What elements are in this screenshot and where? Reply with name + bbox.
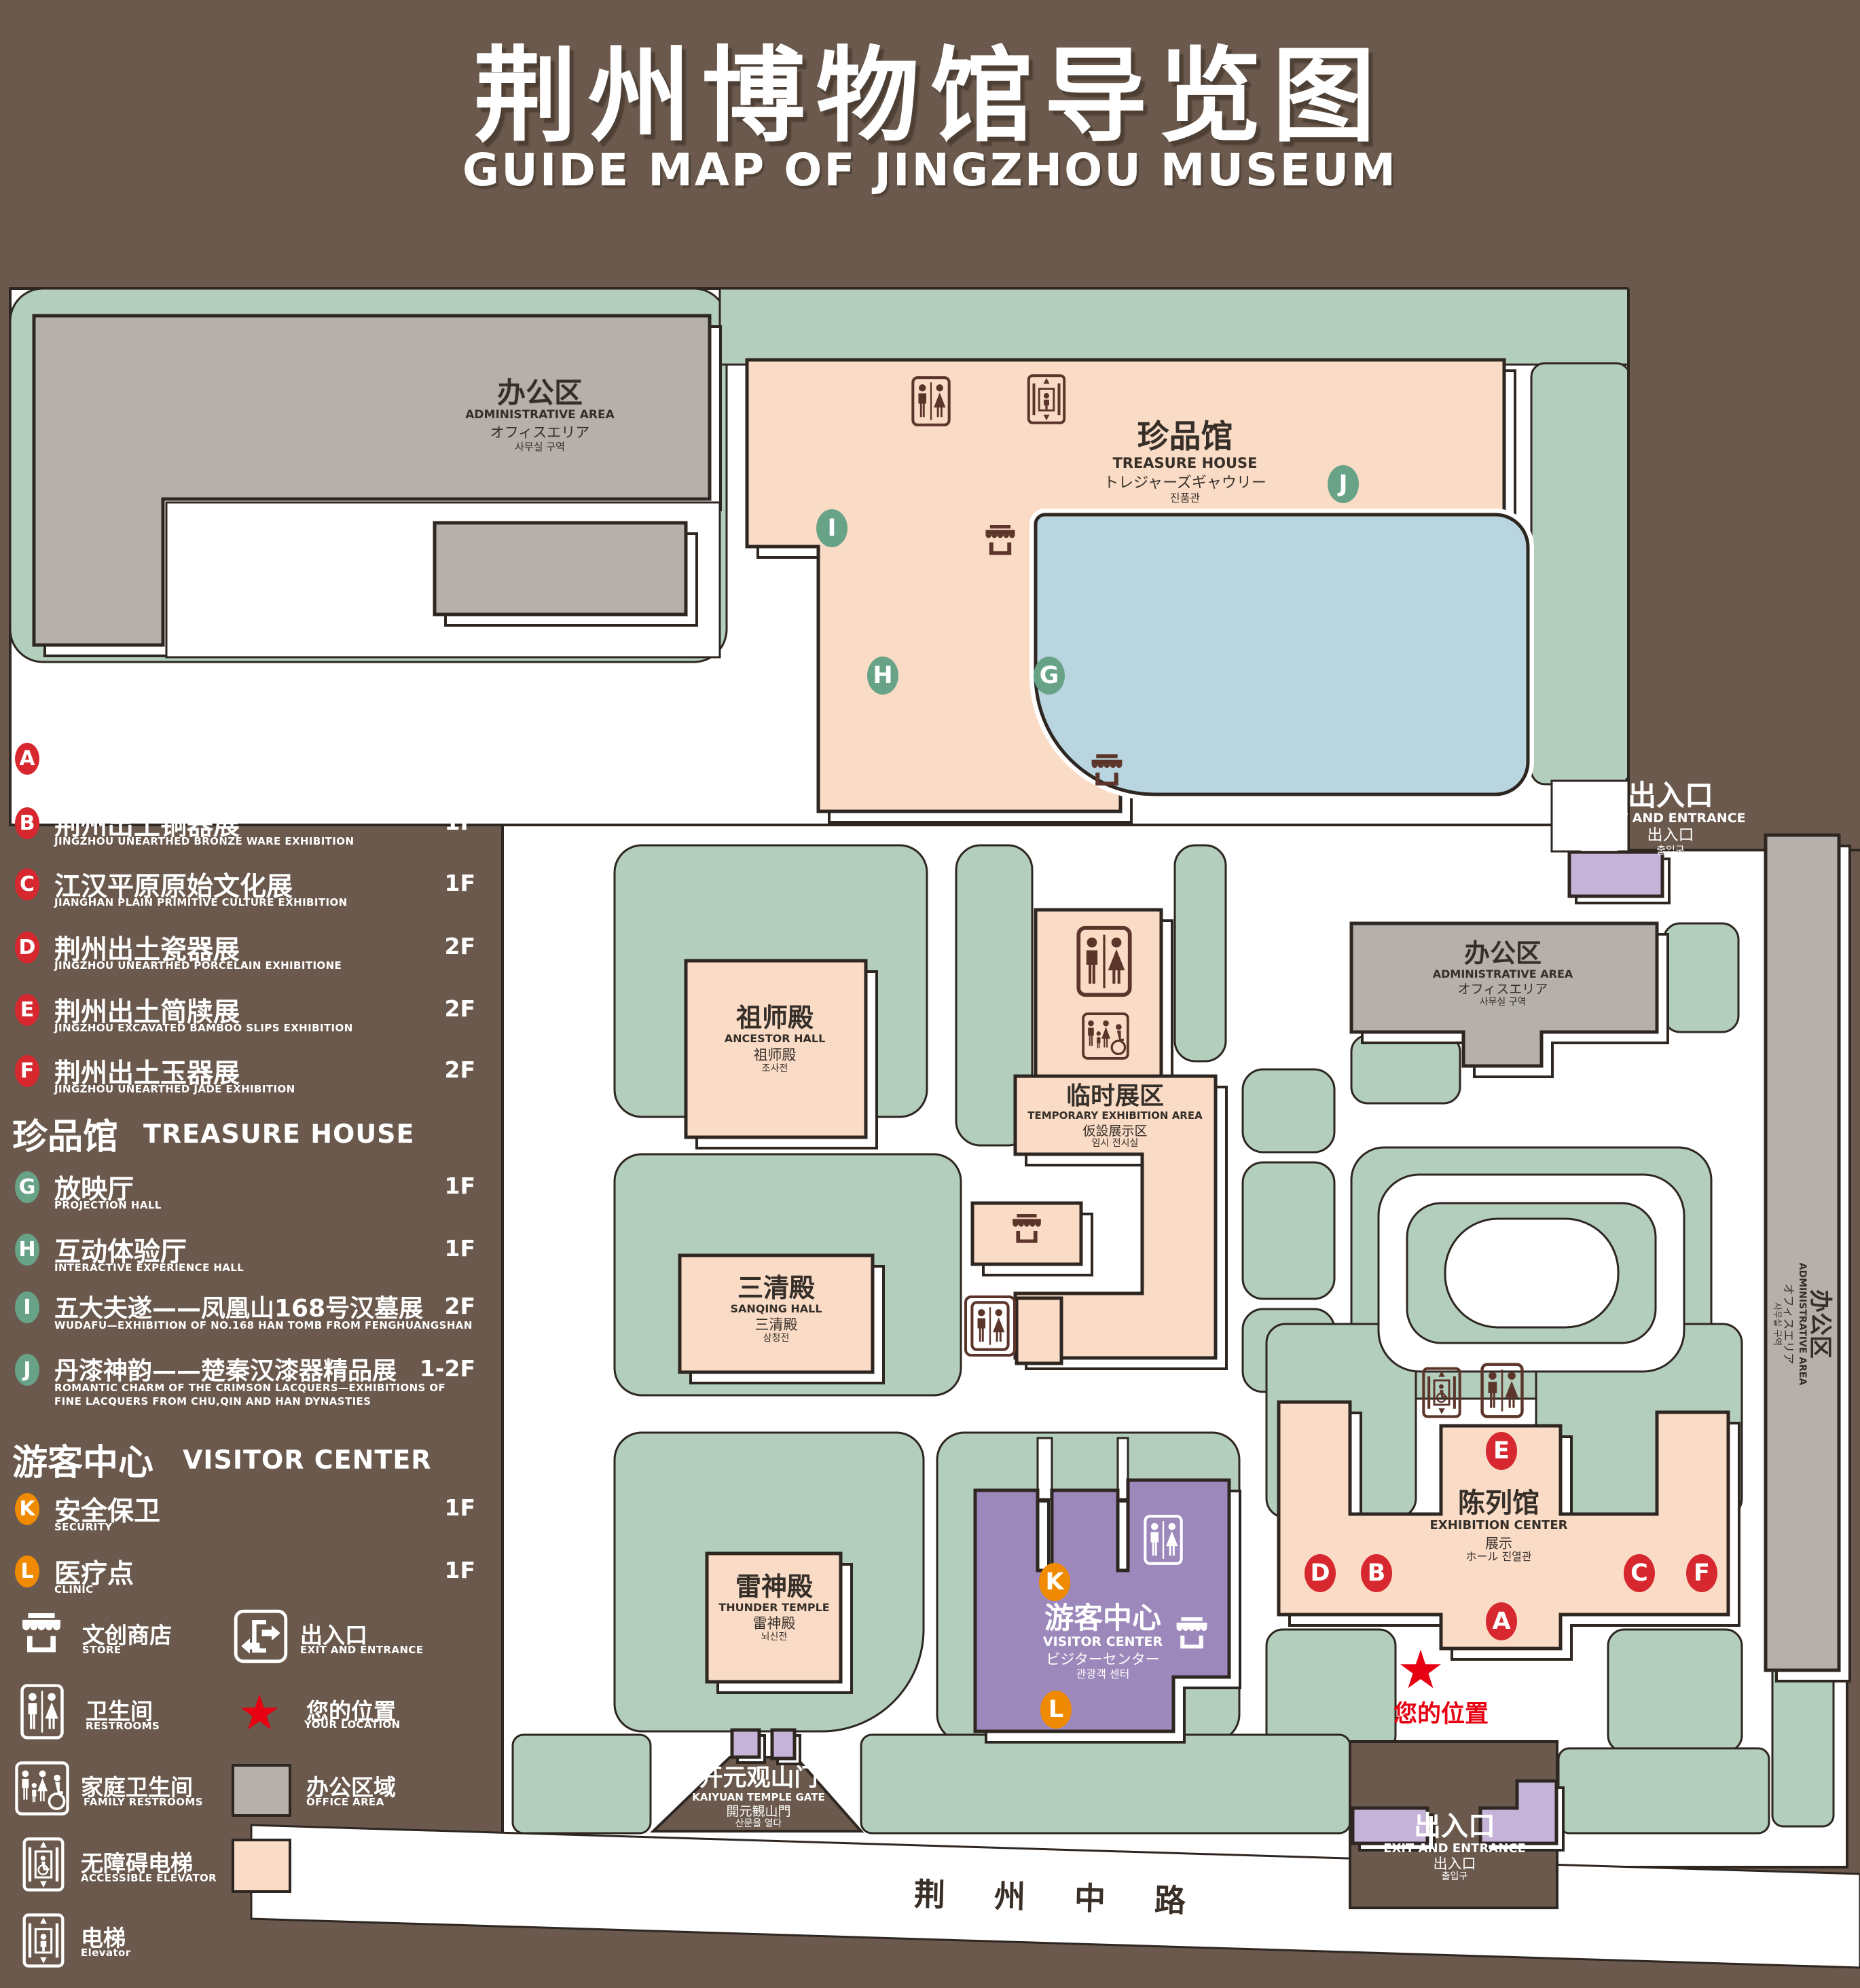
label-thunder-temple: 雷神殿 THUNDER TEMPLE 雷神殿 뇌신전: [718, 1572, 829, 1643]
label-jp: オフィスエリア: [1433, 982, 1573, 997]
label-jp: 祖师殿: [725, 1048, 826, 1064]
item-en: CLINIC: [54, 1583, 475, 1597]
label-jp: 展示: [1430, 1536, 1568, 1551]
lawn: [1243, 1162, 1334, 1299]
lawn: [1266, 1630, 1396, 1752]
item-floor: 2F: [444, 1293, 475, 1319]
store-icon: [1173, 1608, 1211, 1665]
item-en: THE PHOENIX IN FIRE "MURAL PAINTING: [54, 771, 475, 784]
purple-building-topright: [1569, 852, 1662, 896]
label-en: VISITOR CENTER: [1043, 1635, 1163, 1649]
label-jp: オフィスエリア: [465, 425, 614, 441]
legend-item-f: F 荆州出土玉器展 JINGZHOU UNEARTHED JADE EXHIBI…: [0, 1052, 484, 1111]
label-admin-right: 办公区 ADMINISTRATIVE AREA オフィスエリア 사무실 구역: [1772, 1263, 1833, 1386]
label-en: ADMINISTRATIVE AREA: [465, 409, 614, 422]
label-jp: 開元観山門: [692, 1805, 824, 1819]
restroom-icon: [911, 375, 951, 427]
map-badge-E: E: [1486, 1432, 1517, 1470]
lawn: [1531, 363, 1630, 784]
legend-item-h: H 互动体验厅 INTERACTIVE EXPERIENCE HALL 1F: [0, 1231, 484, 1289]
label-kr: 사무실 구역: [1772, 1263, 1782, 1386]
label-zh: 办公区: [465, 377, 614, 409]
label-jp: 出入口: [1383, 1856, 1526, 1873]
map-badge-D: D: [1305, 1554, 1336, 1592]
label-your-location: 您的位置: [1393, 1701, 1489, 1728]
label-kr: 삼청전: [730, 1333, 822, 1344]
store-icon: [18, 1610, 65, 1663]
item-en: SECURITY: [54, 1521, 475, 1534]
symbol-location-en: YOUR LOCATION: [304, 1718, 401, 1731]
badge-k: K: [15, 1493, 39, 1525]
legend-section-visitor-center: 游客中心 VISITOR CENTER: [0, 1434, 489, 1481]
label-en: EXHIBITION CENTER: [1430, 1519, 1568, 1532]
section-title-zh: 珍品馆: [12, 1108, 118, 1159]
label-en: THUNDER TEMPLE: [718, 1602, 829, 1614]
gate-tower-left: [732, 1730, 759, 1757]
badge-g: G: [15, 1171, 39, 1203]
label-kr: 관광객 센터: [1043, 1668, 1163, 1680]
label-zh: 临时展区: [1027, 1083, 1202, 1110]
restroom-icon: [964, 1295, 1016, 1357]
section-title-en: TREASURE HOUSE: [143, 1119, 415, 1149]
label-jp: 三清殿: [730, 1317, 822, 1333]
item-floor: 2F: [444, 933, 475, 959]
label-zh: 出入口: [1383, 1811, 1526, 1842]
label-kr: 임시 전시실: [1027, 1139, 1202, 1149]
map-badge-C: C: [1624, 1554, 1655, 1592]
family-restroom-icon: [1082, 1006, 1129, 1066]
symbol-exit-en: EXIT AND ENTRANCE: [300, 1644, 423, 1656]
legend-section-treasure-house: 珍品馆 TREASURE HOUSE: [0, 1108, 489, 1156]
store-icon: [1009, 1208, 1044, 1255]
lawn: [1664, 923, 1738, 1032]
item-floor: 1F: [444, 1235, 475, 1262]
map-badge-B: B: [1361, 1554, 1392, 1592]
location-star-icon: ★: [238, 1688, 282, 1737]
label-kr: 뇌신전: [718, 1632, 829, 1643]
map-badge-L: L: [1040, 1691, 1072, 1729]
outside-area: [1628, 285, 1860, 850]
label-kr: 진품관: [1104, 492, 1266, 504]
label-zh: 祖师殿: [725, 1004, 826, 1033]
legend-item-e: E 荆州出土简牍展 JINGZHOU EXCAVATED BAMBOO SLIP…: [0, 991, 484, 1050]
badge-d: D: [15, 932, 39, 963]
label-visitor-center: 游客中心 VISITOR CENTER ビジターセンター 관광객 센터: [1043, 1602, 1163, 1680]
badge-e: E: [15, 994, 39, 1026]
item-en: PROJECTION HALL: [54, 1199, 475, 1213]
lawn: [1243, 1069, 1334, 1152]
lawn: [861, 1735, 1350, 1833]
label-temporary-area: 临时展区 TEMPORARY EXHIBITION AREA 仮設展示区 임시 …: [1027, 1083, 1202, 1149]
lawn: [1558, 1748, 1769, 1833]
restroom-icon: [1144, 1513, 1183, 1567]
badge-i: I: [15, 1291, 39, 1323]
item-en: INTERACTIVE EXPERIENCE HALL: [54, 1262, 475, 1275]
badge-l: L: [15, 1556, 39, 1587]
guide-map-page: 荆州博物馆导览图 GUIDE MAP OF JINGZHOU MUSEUM: [0, 0, 1860, 1988]
store-icon: [1088, 749, 1126, 798]
accessible-elevator-icon: [1422, 1362, 1461, 1423]
office-building-right: [1766, 835, 1839, 1670]
symbol-display-en: DISPLAY AREA: [300, 1871, 385, 1883]
label-en: EXIT AND ENTRANCE: [1383, 1842, 1526, 1856]
legend-item-g: G 放映厅 PROJECTION HALL 1F: [0, 1168, 484, 1227]
accessible-elevator-icon: [17, 1837, 70, 1892]
item-floor: 1F: [444, 809, 475, 835]
restroom-icon: [1076, 925, 1132, 998]
label-jp: ビジターセンター: [1043, 1652, 1163, 1668]
map-badge-F: F: [1686, 1554, 1717, 1592]
legend-item-b: B 荆州出土铜器展 JINGZHOU UNEARTHED BRONZE WARE…: [0, 805, 484, 863]
exit-icon: [1574, 801, 1624, 851]
item-floor: 1F: [444, 1173, 475, 1199]
badge-b: B: [15, 807, 39, 839]
label-admin-topleft: 办公区 ADMINISTRATIVE AREA オフィスエリア 사무실 구역: [465, 377, 614, 452]
map-badge-I: I: [816, 509, 847, 547]
elevator-icon: [17, 1913, 70, 1968]
visitor-entry-slot: [1038, 1438, 1052, 1499]
section-title-zh: 游客中心: [12, 1434, 153, 1485]
symbol-family-en: FAMILY RESTROOMS: [84, 1796, 203, 1808]
your-location-star: ★: [1397, 1644, 1444, 1697]
label-exit-bottom: 出入口 EXIT AND ENTRANCE 出入口 출입구: [1383, 1811, 1526, 1883]
badge-c: C: [15, 868, 39, 900]
map-badge-H: H: [867, 657, 898, 695]
label-en: SANQING HALL: [730, 1303, 822, 1315]
small-display-building: [1017, 1298, 1061, 1363]
label-ancestor-hall: 祖师殿 ANCESTOR HALL 祖师殿 조사전: [725, 1004, 826, 1075]
legend-item-j: J 丹漆神韵——楚秦汉漆器精品展 ROMANTIC CHARM OF THE C…: [0, 1351, 484, 1433]
item-en: JINGZHOU UNEARTHED PORCELAIN EXHIBITIONE: [54, 959, 475, 973]
item-floor: 1F: [444, 1494, 475, 1521]
label-zh: 陈列馆: [1430, 1488, 1568, 1519]
lawn: [1351, 1035, 1460, 1103]
label-kr: 사무실 구역: [465, 441, 614, 453]
label-jp: トレジャーズギャウリー: [1104, 475, 1266, 492]
map-badge-A: A: [1486, 1602, 1517, 1640]
office-annex: [435, 523, 686, 614]
label-zh: 办公区: [1433, 939, 1573, 968]
map-badge-J: J: [1328, 465, 1359, 503]
item-floor: 1-2F: [420, 1355, 475, 1382]
restroom-icon: [14, 1684, 71, 1739]
label-jp: 雷神殿: [718, 1616, 829, 1632]
label-exhibition-center: 陈列馆 EXHIBITION CENTER 展示 ホール 진열관: [1430, 1488, 1568, 1563]
badge-f: F: [15, 1055, 39, 1087]
badge-h: H: [15, 1234, 39, 1266]
item-en: JINGZHOU UNEARTHED JADE EXHIBITION: [54, 1083, 475, 1097]
item-floor: 1F: [444, 1557, 475, 1583]
your-location-text: 您的位置: [1393, 1701, 1489, 1728]
symbol-store-en: STORE: [82, 1644, 122, 1656]
label-kr: 출입구: [1383, 1872, 1526, 1883]
symbol-accessible-en: ACCESSIBLE ELEVATOR: [81, 1872, 217, 1884]
label-sanqing-hall: 三清殿 SANQING HALL 三清殿 삼청전: [730, 1274, 822, 1344]
elevator-icon: [1027, 374, 1066, 424]
label-en: ANCESTOR HALL: [725, 1033, 826, 1045]
section-title-en: VISITOR CENTER: [183, 1445, 432, 1475]
legend-item-l: L 医疗点 CLINIC 1F: [0, 1553, 484, 1611]
maze-pond-path: [1445, 1219, 1618, 1327]
item-en: JINGZHOU EXCAVATED BAMBOO SLIPS EXHIBITI…: [54, 1022, 475, 1035]
section-title-en: EXHIBITION CENTER: [146, 690, 448, 720]
display-area-swatch: [232, 1839, 291, 1893]
item-floor: 1F: [444, 870, 475, 896]
badge-a: A: [15, 743, 39, 775]
label-treasure-house: 珍品馆 TREASURE HOUSE トレジャーズギャウリー 진품관: [1104, 420, 1266, 504]
symbol-elevator-en: Elevator: [81, 1947, 131, 1959]
legend-item-a: A 《火中的凤凰》壁画 THE PHOENIX IN FIRE "MURAL P…: [0, 740, 484, 798]
label-kr: ホール 진열관: [1430, 1551, 1568, 1563]
office-area-swatch: [232, 1764, 291, 1817]
item-floor: 2F: [444, 995, 475, 1022]
legend-item-d: D 荆州出土瓷器展 JINGZHOU UNEARTHED PORCELAIN E…: [0, 929, 484, 987]
label-zh: 雷神殿: [718, 1572, 829, 1602]
map-badge-G: G: [1034, 657, 1065, 695]
label-zh: 珍品馆: [1104, 420, 1266, 456]
label-road: 荆 州 中 路: [913, 1877, 1205, 1919]
map-badge-K: K: [1039, 1563, 1070, 1601]
legend-item-c: C 江汉平原原始文化展 JIANGHAN PLAIN PRIMITIVE CUL…: [0, 866, 484, 924]
item-en: JIANGHAN PLAIN PRIMITIVE CULTURE EXHIBIT…: [54, 896, 475, 910]
label-zh: 开元观山门: [692, 1765, 824, 1792]
store-icon: [982, 519, 1019, 567]
family-restroom-icon: [15, 1761, 69, 1816]
symbol-office-en: OFFICE AREA: [306, 1796, 384, 1808]
label-kr: 조사전: [725, 1064, 826, 1075]
lawn: [1175, 845, 1226, 1061]
lawn: [1608, 1630, 1742, 1752]
lawn: [513, 1735, 651, 1833]
section-title-zh: 陈列馆: [12, 679, 118, 730]
label-zh: 办公区: [1807, 1263, 1833, 1386]
legend-section-exhibition-center: 陈列馆 EXHIBITION CENTER: [0, 679, 489, 726]
item-en: JINGZHOU UNEARTHED BRONZE WARE EXHIBITIO…: [54, 835, 475, 849]
legend-item-k: K 安全保卫 SECURITY 1F: [0, 1490, 484, 1549]
label-zh: 游客中心: [1043, 1602, 1163, 1635]
label-jp: オフィスエリア: [1781, 1263, 1794, 1386]
legend-item-i: I 五大夫遂——凤凰山168号汉墓展 WUDAFU—EXHIBITION OF …: [0, 1289, 484, 1347]
label-zh: 三清殿: [730, 1274, 822, 1303]
item-floor: 1F: [444, 744, 475, 771]
label-en: TEMPORARY EXHIBITION AREA: [1027, 1110, 1202, 1122]
label-en: KAIYUAN TEMPLE GATE: [692, 1792, 824, 1803]
gate-tower-right: [772, 1730, 795, 1759]
label-kr: 사무실 구역: [1433, 997, 1573, 1008]
badge-j: J: [15, 1354, 39, 1386]
label-en: ADMINISTRATIVE AREA: [1796, 1263, 1807, 1386]
item-en: ROMANTIC CHARM OF THE CRIMSON LACQUERS—E…: [54, 1382, 462, 1408]
exit-icon: [233, 1609, 289, 1663]
road-name: 荆 州 中 路: [913, 1877, 1205, 1919]
item-floor: 2F: [444, 1056, 475, 1083]
label-en: TREASURE HOUSE: [1104, 456, 1266, 472]
label-admin-mid: 办公区 ADMINISTRATIVE AREA オフィスエリア 사무실 구역: [1433, 939, 1573, 1008]
label-kaiyuan-gate: 开元观山门 KAIYUAN TEMPLE GATE 開元観山門 산문을 열다: [692, 1765, 824, 1830]
lawn: [720, 289, 1633, 365]
item-en: WUDAFU—EXHIBITION OF NO.168 HAN TOMB FRO…: [54, 1319, 475, 1333]
label-en: ADMINISTRATIVE AREA: [1433, 968, 1573, 980]
label-jp: 仮設展示区: [1027, 1124, 1202, 1139]
restroom-icon: [1480, 1358, 1524, 1423]
label-kr: 산문을 열다: [692, 1819, 824, 1830]
symbol-restrooms-en: RESTROOMS: [86, 1720, 160, 1732]
